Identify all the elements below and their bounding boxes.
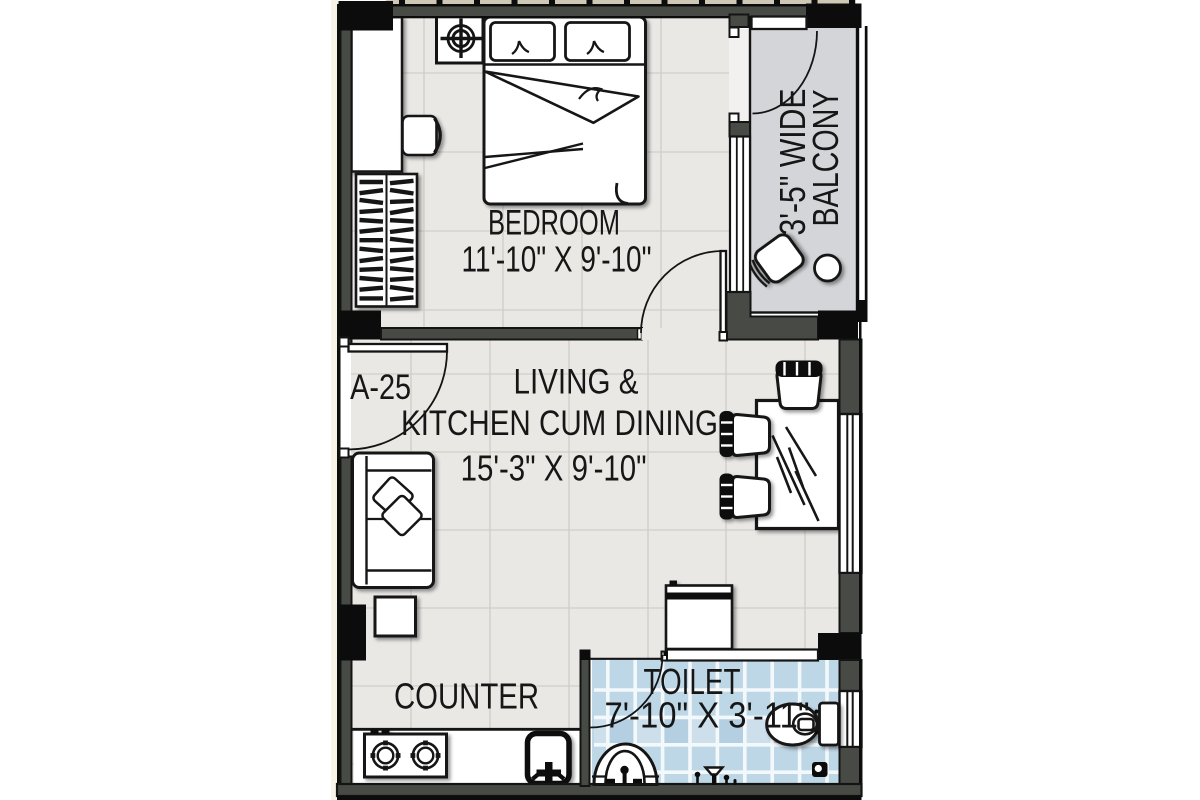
svg-text:KITCHEN CUM DINING: KITCHEN CUM DINING <box>401 404 718 443</box>
svg-text:LIVING &: LIVING & <box>514 363 639 402</box>
svg-text:A-25: A-25 <box>350 368 411 407</box>
svg-text:BEDROOM: BEDROOM <box>488 204 620 243</box>
svg-text:15'-3" X 9'-10": 15'-3" X 9'-10" <box>461 448 647 489</box>
svg-text:COUNTER: COUNTER <box>394 676 539 717</box>
svg-text:BALCONY: BALCONY <box>805 90 846 227</box>
svg-text:7'-10" X 3'-11": 7'-10" X 3'-11" <box>605 695 810 736</box>
svg-text:11'-10" X 9'-10": 11'-10" X 9'-10" <box>462 239 652 280</box>
